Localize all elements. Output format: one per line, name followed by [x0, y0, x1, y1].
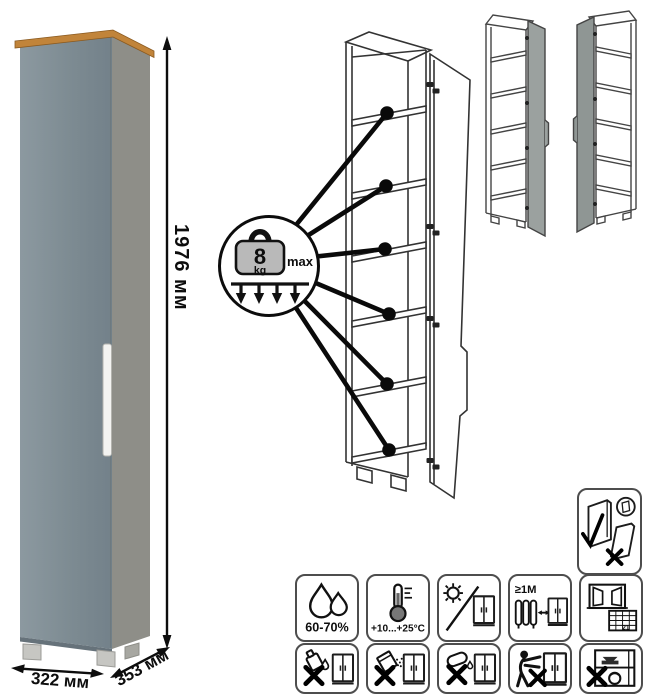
wardrobe-glyph — [403, 654, 425, 683]
door-hinged-left-variant — [574, 11, 637, 232]
sun-icon — [448, 587, 459, 598]
cabinet-side-panel — [112, 36, 150, 649]
x-mark — [449, 666, 465, 682]
carry-panels-graphic — [581, 493, 638, 570]
water-drop — [310, 585, 332, 618]
exploded-cabinet-drawing — [346, 32, 470, 498]
wardrobe-glyph — [474, 654, 496, 683]
carry-panels-vertically-icon — [577, 488, 642, 575]
no-heavy-overload-icon — [579, 643, 643, 694]
no-wet-cleaning-icon — [437, 643, 501, 694]
keep-distance-from-heat-icon: ≥1M — [508, 574, 572, 642]
product-dimension-sheet: 1976 мм 322 мм 353 мм 8 kg max — [0, 0, 648, 700]
cabinet-foot — [23, 644, 41, 660]
calendar-day-label: 21 — [622, 624, 630, 631]
no-direct-sunlight-icon — [437, 574, 501, 642]
drip-drop — [468, 661, 473, 668]
distance-label: ≥1M — [515, 584, 537, 596]
open-door — [430, 54, 470, 498]
load-unit: kg — [254, 265, 266, 277]
arrowhead — [163, 36, 172, 50]
door-hinged-right-variant — [486, 15, 549, 236]
no-aggressive-liquids-icon — [295, 643, 359, 694]
height-dimension-label: 1976 мм — [169, 224, 192, 311]
no-abrasive-powders-icon — [366, 643, 430, 694]
ventilate-room-icon: 21 — [579, 574, 643, 642]
door-handle — [103, 344, 112, 456]
drawing-foot — [357, 467, 372, 483]
load-max-label: max — [287, 254, 314, 269]
radiator-icon — [516, 601, 537, 625]
variant-door-panel — [528, 21, 545, 236]
cabinet-foot — [125, 643, 139, 659]
x-mark — [531, 670, 545, 684]
humidity-label: 60-70% — [305, 620, 348, 634]
variant-door-panel — [577, 17, 594, 232]
cabinet-photo — [15, 30, 154, 667]
drawing-foot — [391, 475, 406, 491]
max-load-badge: 8 kg max — [218, 215, 320, 317]
wardrobe-glyph — [548, 598, 568, 625]
down-arrows — [236, 284, 300, 304]
wardrobe-glyph — [332, 654, 354, 683]
tilted-panel — [611, 524, 634, 560]
temperature-label: +10...+25°C — [371, 623, 425, 634]
temperature-range-icon: +10...+25°C — [366, 574, 430, 642]
cabinet-foot — [97, 650, 115, 667]
wardrobe-glyph — [473, 596, 495, 625]
water-drop — [331, 593, 347, 615]
wardrobe-glyph — [543, 653, 566, 684]
pointer-dots — [378, 106, 396, 457]
cabinet-front-door — [20, 36, 112, 649]
humidity-range-icon: 60-70% — [295, 574, 359, 642]
max-load-graphic: 8 kg max — [221, 218, 317, 314]
no-climbing-icon — [508, 643, 572, 694]
